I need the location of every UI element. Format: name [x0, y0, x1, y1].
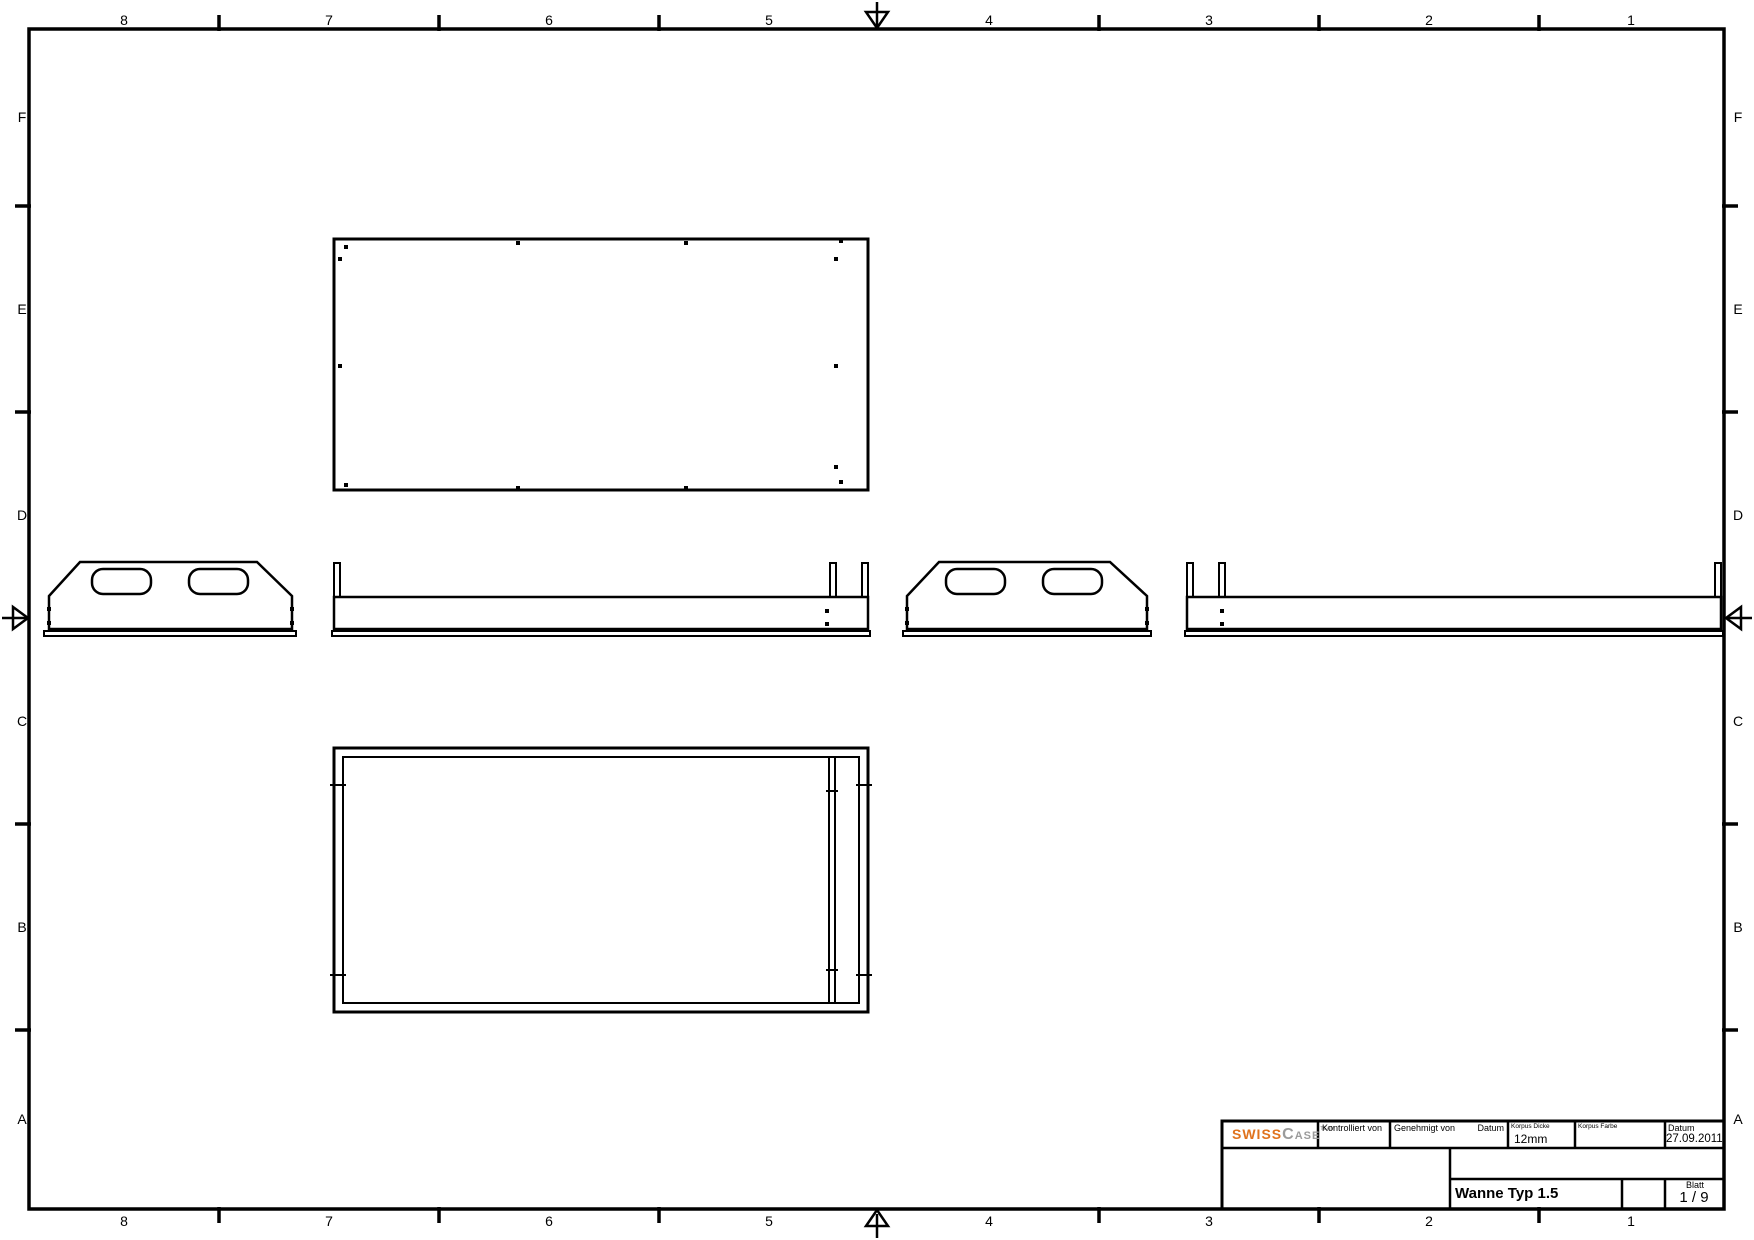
grid-row-label-left-A: A	[10, 1110, 34, 1128]
grid-col-label-top-1: 1	[1619, 11, 1643, 29]
grid-col-label-top-2: 2	[1417, 11, 1441, 29]
bottom-plan-view-rect	[829, 757, 835, 1003]
end-panel-left-view-dot	[47, 621, 51, 625]
side-rail-view-rect	[1185, 631, 1723, 636]
grid-row-label-right-D: D	[1726, 506, 1750, 524]
end-panel-right-view-dot	[1145, 607, 1149, 611]
top-view-dot	[839, 480, 843, 484]
end-panel-right-view	[903, 562, 1151, 636]
centering-marks	[2, 2, 1752, 1238]
grid-col-label-top-6: 6	[537, 11, 561, 29]
korpus-dicke-label: Korpus Dicke	[1511, 1123, 1550, 1130]
top-view-dot	[516, 486, 520, 490]
front-rail-view-rect	[334, 597, 868, 629]
side-rail-view-dot	[1220, 609, 1224, 613]
grid-col-label-bottom-6: 6	[537, 1212, 561, 1230]
front-rail-view-dot	[825, 609, 829, 613]
top-view	[334, 239, 868, 490]
front-rail-view-rect	[332, 631, 870, 636]
grid-row-label-right-C: C	[1726, 712, 1750, 730]
cad-linework	[0, 0, 1754, 1240]
bottom-plan-view-rect	[343, 757, 859, 1003]
sheet-frame	[15, 15, 1738, 1223]
end-panel-right-view-poly	[907, 562, 1147, 629]
grid-col-label-bottom-1: 1	[1619, 1212, 1643, 1230]
top-view-dot	[338, 257, 342, 261]
grid-row-label-left-D: D	[10, 506, 34, 524]
grid-col-label-bottom-2: 2	[1417, 1212, 1441, 1230]
grid-row-label-right-B: B	[1726, 918, 1750, 936]
grid-col-label-bottom-4: 4	[977, 1212, 1001, 1230]
end-panel-left-view-dot	[290, 621, 294, 625]
front-rail-view-dot	[825, 622, 829, 626]
top-view-dot	[834, 465, 838, 469]
end-panel-left-view-dot	[47, 607, 51, 611]
grid-col-label-top-5: 5	[757, 11, 781, 29]
end-panel-left-view-rrect	[92, 569, 151, 594]
top-view-dot	[516, 241, 520, 245]
grid-row-label-right-F: F	[1726, 108, 1750, 126]
grid-row-label-left-E: E	[10, 300, 34, 318]
genehmigt-von-label: Genehmigt von	[1394, 1123, 1455, 1133]
grid-col-label-top-7: 7	[317, 11, 341, 29]
genehmigt-von-cell-labels: Genehmigt von Datum	[1394, 1123, 1504, 1133]
end-panel-left-view-rect	[44, 631, 296, 636]
front-rail-view-rect	[334, 563, 340, 597]
front-rail-view-rect	[830, 563, 836, 597]
bottom-plan-view	[330, 748, 872, 1012]
end-panel-right-view-rect	[903, 631, 1151, 636]
top-view-rect	[334, 239, 868, 490]
grid-row-label-left-F: F	[10, 108, 34, 126]
grid-col-label-bottom-3: 3	[1197, 1212, 1221, 1230]
top-view-dot	[684, 486, 688, 490]
top-view-dot	[344, 483, 348, 487]
end-panel-left-view-rrect	[189, 569, 248, 594]
drawing-sheet: 8877665544332211FFEEDDCCBBAA SWISSCASETE…	[0, 0, 1754, 1240]
top-view-dot	[338, 364, 342, 368]
end-panel-left-view-dot	[290, 607, 294, 611]
korpus-farbe-label: Korpus Farbe	[1578, 1123, 1617, 1130]
side-rail-view	[1185, 563, 1723, 636]
end-panel-left-view	[44, 562, 296, 636]
sheet-frame-rect	[29, 29, 1724, 1209]
top-view-dot	[839, 239, 843, 243]
top-view-dot	[834, 257, 838, 261]
front-rail-view	[332, 563, 870, 636]
side-rail-view-rect	[1715, 563, 1721, 597]
top-view-dot	[834, 364, 838, 368]
grid-col-label-bottom-7: 7	[317, 1212, 341, 1230]
swisscase-logo: SWISSCASETEAM	[1232, 1126, 1316, 1146]
logo-word-swiss: SWISS	[1232, 1126, 1282, 1142]
end-panel-right-view-rrect	[946, 569, 1005, 594]
end-panel-right-view-dot	[905, 607, 909, 611]
side-rail-view-rect	[1187, 563, 1193, 597]
grid-col-label-top-3: 3	[1197, 11, 1221, 29]
grid-col-label-top-8: 8	[112, 11, 136, 29]
grid-row-label-left-C: C	[10, 712, 34, 730]
grid-row-label-left-B: B	[10, 918, 34, 936]
top-view-dot	[344, 245, 348, 249]
grid-col-label-top-4: 4	[977, 11, 1001, 29]
end-panel-right-view-dot	[1145, 621, 1149, 625]
grid-row-label-right-A: A	[1726, 1110, 1750, 1128]
end-panel-right-view-rrect	[1043, 569, 1102, 594]
end-panel-right-view-dot	[905, 621, 909, 625]
front-rail-view-rect	[862, 563, 868, 597]
genehmigt-datum-label: Datum	[1477, 1123, 1504, 1133]
datum-value: 27.09.2011	[1666, 1133, 1723, 1145]
datum-label: Datum	[1668, 1123, 1695, 1133]
part-name: Wanne Typ 1.5	[1455, 1185, 1558, 1202]
grid-row-label-right-E: E	[1726, 300, 1750, 318]
grid-col-label-bottom-5: 5	[757, 1212, 781, 1230]
side-rail-view-rect	[1187, 597, 1721, 629]
bottom-plan-view-rect	[334, 748, 868, 1012]
side-rail-view-dot	[1220, 622, 1224, 626]
blatt-value: 1 / 9	[1668, 1189, 1720, 1206]
korpus-dicke-value: 12mm	[1514, 1132, 1547, 1146]
side-rail-view-rect	[1219, 563, 1225, 597]
top-view-dot	[684, 241, 688, 245]
kontrolliert-von-label: Kontrolliert von	[1322, 1123, 1382, 1133]
end-panel-left-view-poly	[49, 562, 292, 629]
grid-col-label-bottom-8: 8	[112, 1212, 136, 1230]
